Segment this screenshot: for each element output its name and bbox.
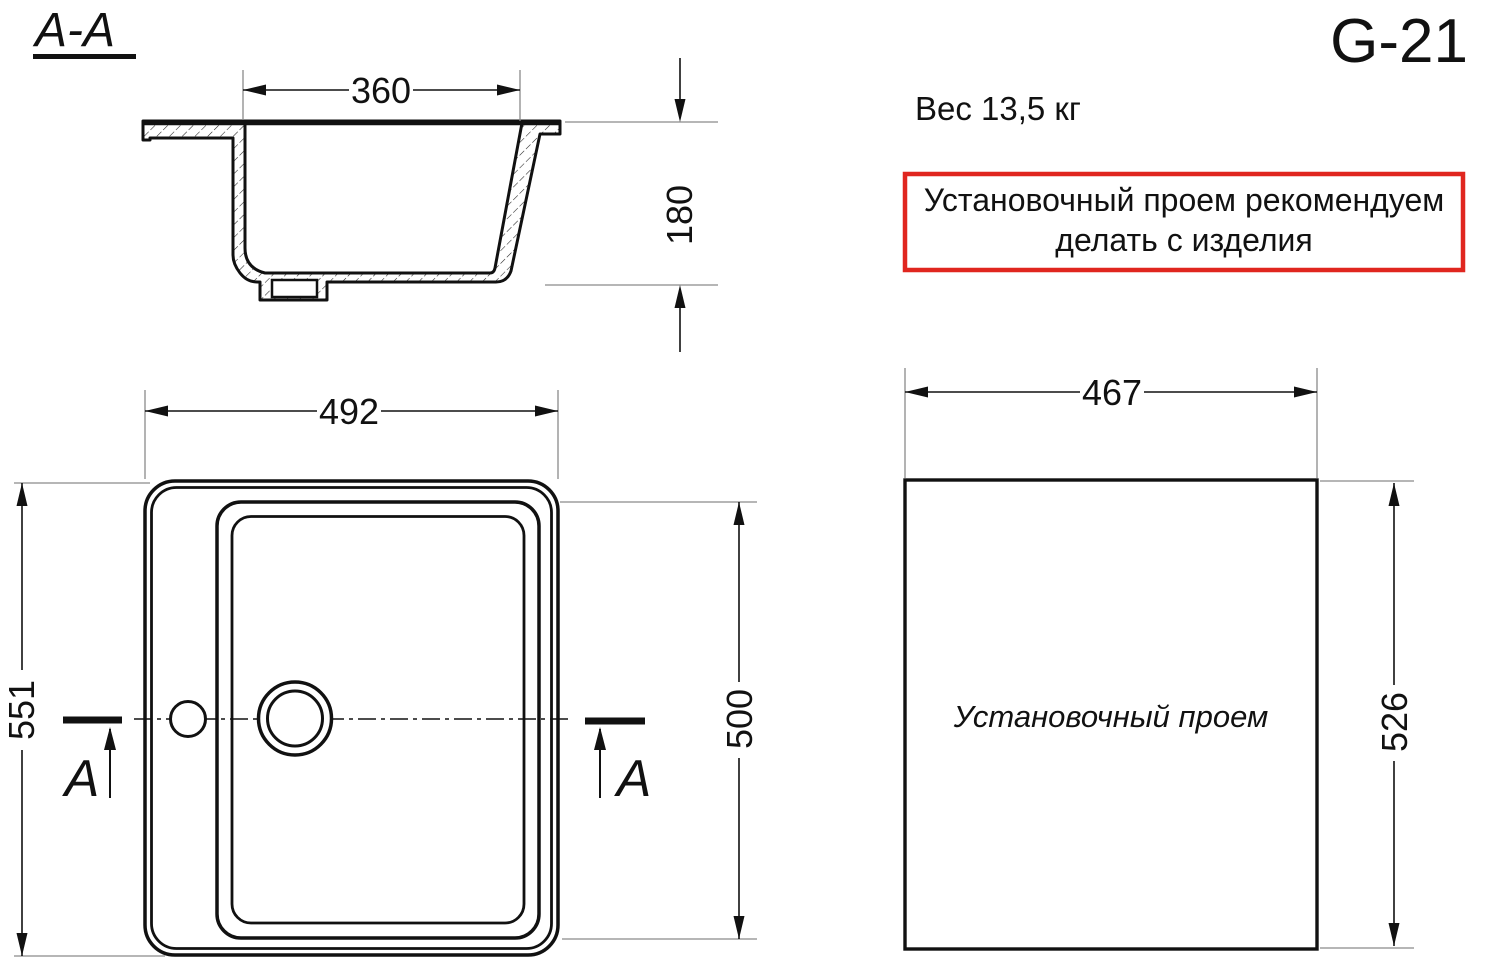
section-title-underline [33,54,136,59]
dim-467: 467 [905,368,1317,478]
dim-value-492: 492 [319,391,379,432]
sink-cross-section [143,121,560,300]
annotations: G-21 Вес 13,5 кг Установочный проем реко… [905,7,1468,270]
cut-arrow-head [594,727,606,750]
cut-letter: A [62,750,100,808]
dim-180: 180 [545,58,718,352]
dim-360: 360 [243,70,520,121]
arrow-down [675,99,686,122]
drain-hole-outer [259,682,332,755]
dim-492: 492 [145,390,558,479]
cut-arrow-head [104,727,116,750]
arrow-right [497,85,520,96]
arrow-up [675,285,686,308]
model-number: G-21 [1330,7,1468,76]
cut-mark-left: A [62,720,122,808]
faucet-hole [171,702,206,737]
weight-label: Вес 13,5 кг [915,90,1081,127]
dim-value-360: 360 [351,70,411,111]
sink-rim [152,488,552,949]
section-view: A-A 360 180 [32,4,718,352]
note-line-2: делать с изделия [1055,222,1312,258]
note-line-1: Установочный проем рекомендуем [924,182,1445,218]
arrow-right [535,406,558,417]
arrow-down [17,933,28,956]
arrow-left [145,406,168,417]
arrow-down [1389,923,1400,946]
arrow-down [734,916,745,939]
technical-drawing-page: A-A 360 180 [0,0,1491,962]
dim-value-180: 180 [659,185,700,245]
dim-526: 526 [1320,481,1415,948]
install-opening-label: Установочный проем [953,699,1268,734]
install-opening-view: Установочный проем 467 526 [905,368,1415,949]
drawing-canvas: A-A 360 180 [0,0,1491,962]
arrow-left [243,85,266,96]
dim-value-526: 526 [1374,692,1415,752]
dim-value-551: 551 [1,680,42,740]
arrow-up [734,502,745,525]
arrow-up [1389,483,1400,506]
plan-view: A A 492 551 [1,390,760,956]
arrow-up [17,483,28,506]
dim-value-500: 500 [719,689,760,749]
arrow-right [1294,387,1317,398]
drain-slot [272,280,317,297]
cut-mark-right: A [585,721,651,808]
section-title: A-A [32,4,115,57]
dim-value-467: 467 [1082,372,1142,413]
cut-letter: A [614,750,652,808]
arrow-left [905,387,928,398]
